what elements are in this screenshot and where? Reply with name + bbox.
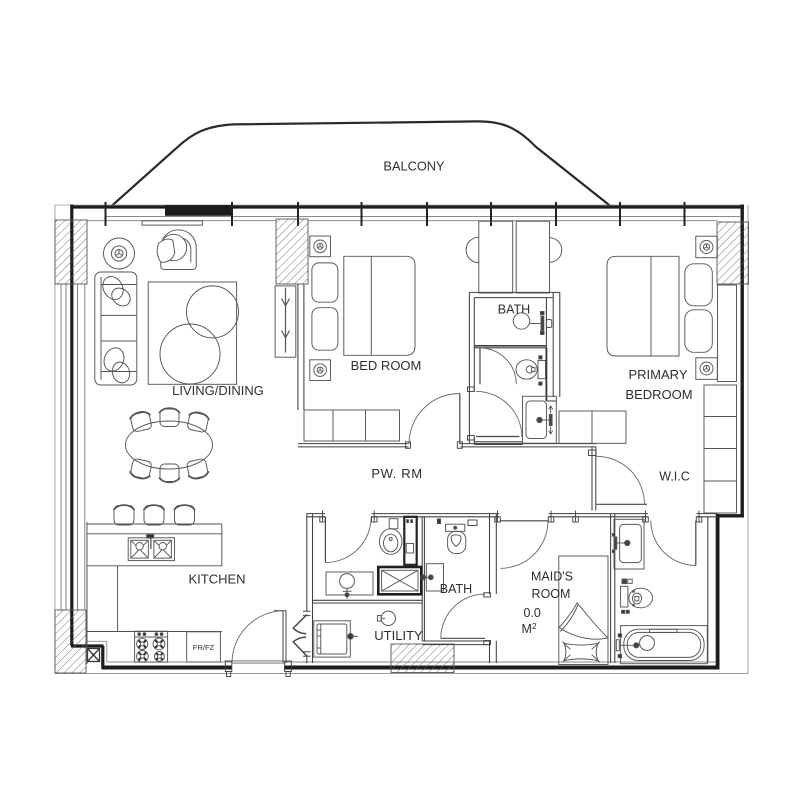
svg-text:LIVING/DINING: LIVING/DINING — [172, 383, 264, 398]
svg-text:BATH: BATH — [498, 303, 530, 317]
svg-text:ROOM: ROOM — [532, 587, 571, 601]
svg-text:PW. RM: PW. RM — [371, 466, 422, 481]
svg-text:FR/FZ: FR/FZ — [193, 643, 215, 652]
svg-text:MAID'S: MAID'S — [531, 570, 573, 584]
svg-text:BALCONY: BALCONY — [383, 159, 445, 174]
svg-text:PRIMARY: PRIMARY — [629, 367, 688, 382]
svg-text:M2: M2 — [522, 621, 537, 636]
svg-text:UTILITY: UTILITY — [374, 628, 423, 643]
svg-text:KITCHEN: KITCHEN — [188, 572, 245, 587]
svg-text:0.0: 0.0 — [524, 606, 541, 620]
svg-text:BEDROOM: BEDROOM — [625, 387, 692, 402]
svg-text:BATH: BATH — [440, 582, 472, 596]
svg-text:W.I.C: W.I.C — [659, 470, 690, 484]
svg-text:BED ROOM: BED ROOM — [351, 358, 422, 373]
